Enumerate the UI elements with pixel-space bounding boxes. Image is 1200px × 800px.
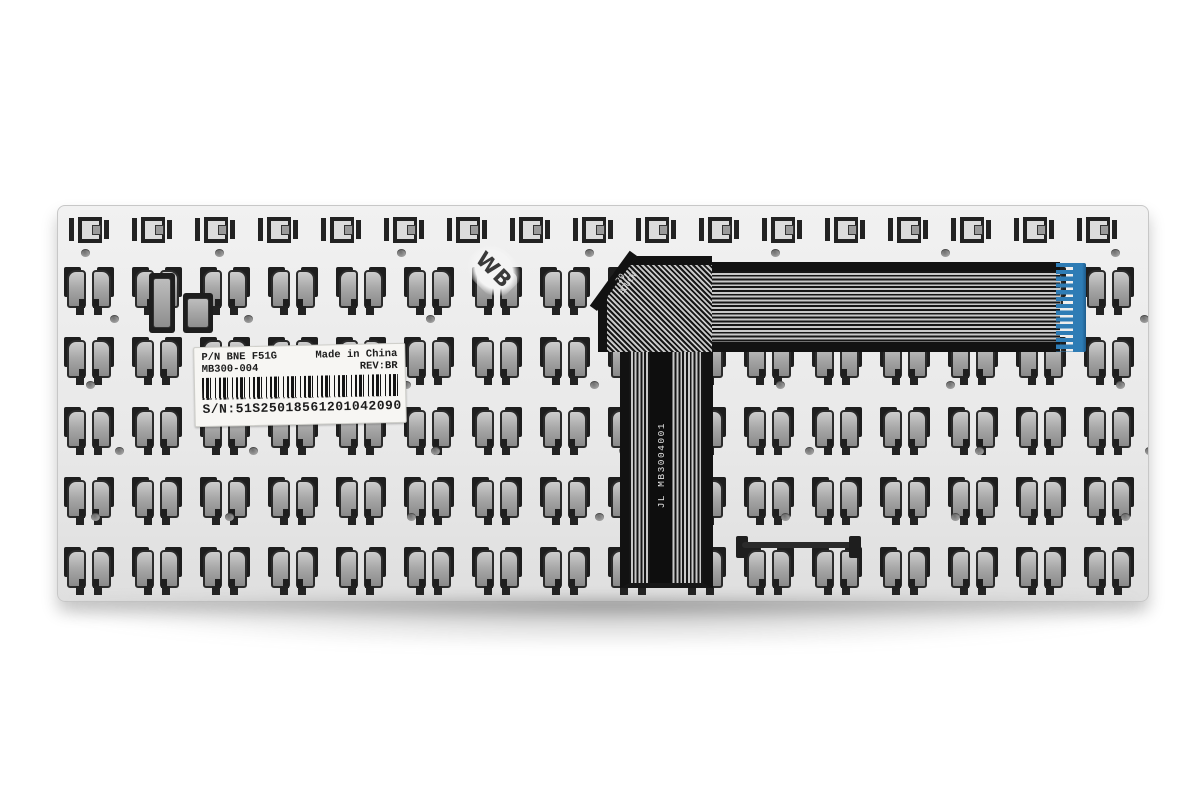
latch-pin-right xyxy=(162,376,170,385)
latch-tab xyxy=(167,220,172,239)
latch-tab xyxy=(356,220,361,239)
latch-hook-right xyxy=(160,550,179,588)
latch-pin-right xyxy=(910,586,918,595)
latch-hook-right xyxy=(1044,550,1063,588)
key-latch xyxy=(471,407,523,457)
latch-bar xyxy=(447,218,452,241)
latch-pin-left xyxy=(484,446,492,455)
latch-pin-left xyxy=(280,306,288,315)
latch-pin-right xyxy=(1046,586,1054,595)
latch-hook-left xyxy=(135,550,154,588)
screw-hole xyxy=(1121,513,1130,521)
latch-hook-right xyxy=(908,550,927,588)
latch-pin-left xyxy=(756,446,764,455)
latch-pin-right xyxy=(298,306,306,315)
key-latch xyxy=(1083,337,1135,387)
key-latch xyxy=(811,477,863,527)
latch-pin-left xyxy=(1096,376,1104,385)
latch-bar xyxy=(1077,218,1082,241)
latch-hook-right xyxy=(1112,550,1131,588)
latch-hook-left xyxy=(271,550,290,588)
latch-hook-right xyxy=(432,480,451,518)
latch-hook-right xyxy=(364,270,383,308)
screw-hole xyxy=(115,447,124,455)
latch-pin-right xyxy=(1114,306,1122,315)
latch-pin-right xyxy=(1046,446,1054,455)
latch-hook-left xyxy=(747,480,766,518)
function-key-latch xyxy=(636,217,678,243)
key-latch xyxy=(267,547,319,597)
latch-pin-right xyxy=(502,376,510,385)
latch-pin-left xyxy=(960,586,968,595)
latch-hook-right xyxy=(228,550,247,588)
latch-pin-left xyxy=(1028,586,1036,595)
latch-bracket xyxy=(834,217,858,243)
latch-pin-right xyxy=(978,586,986,595)
latch-pin-right xyxy=(162,516,170,525)
function-key-latch xyxy=(825,217,867,243)
latch-hook-left xyxy=(67,270,86,308)
latch-hook-left xyxy=(203,480,222,518)
latch-bar xyxy=(510,218,515,241)
latch-bracket xyxy=(204,217,228,243)
latch-pin-left xyxy=(348,586,356,595)
latch-hook-left xyxy=(815,410,834,448)
barcode xyxy=(202,374,398,400)
key-latch xyxy=(335,547,387,597)
latch-hook-left xyxy=(67,340,86,378)
latch-bracket xyxy=(645,217,669,243)
latch-pin-left xyxy=(144,516,152,525)
latch-pin-left xyxy=(824,376,832,385)
latch-pin-left xyxy=(552,376,560,385)
latch-pin-left xyxy=(960,516,968,525)
latch-pin-left xyxy=(1028,446,1036,455)
latch-pin-right xyxy=(298,446,306,455)
latch-pin-right xyxy=(230,446,238,455)
latch-hook-left xyxy=(543,550,562,588)
latch-pin-right xyxy=(774,586,782,595)
function-key-latch xyxy=(573,217,615,243)
screw-hole xyxy=(110,315,119,323)
latch-hook-left xyxy=(883,550,902,588)
latch-bracket xyxy=(708,217,732,243)
latch-hook-right xyxy=(568,340,587,378)
latch-pin-right xyxy=(910,446,918,455)
latch-bar xyxy=(258,218,263,241)
latch-tab xyxy=(797,220,802,239)
latch-pin-left xyxy=(76,516,84,525)
latch-pin-right xyxy=(94,586,102,595)
latch-pin-right xyxy=(366,516,374,525)
function-key-latch xyxy=(69,217,111,243)
latch-hook-right xyxy=(908,410,927,448)
latch-hook-right xyxy=(92,270,111,308)
latch-pin-left xyxy=(280,446,288,455)
latch-hook-right xyxy=(92,410,111,448)
latch-pin-right xyxy=(434,306,442,315)
latch-hook-left xyxy=(475,410,494,448)
latch-pin-left xyxy=(756,586,764,595)
latch-pin-left xyxy=(552,306,560,315)
screw-hole xyxy=(81,249,90,257)
latch-hook-right xyxy=(568,270,587,308)
latch-pin-left xyxy=(280,516,288,525)
latch-pin-right xyxy=(842,586,850,595)
latch-pin-right xyxy=(230,306,238,315)
latch-pin-left xyxy=(76,376,84,385)
key-latch xyxy=(131,337,183,387)
key-latch xyxy=(1015,407,1067,457)
key-latch xyxy=(947,547,999,597)
screw-hole xyxy=(1145,447,1149,455)
latch-hook-right xyxy=(500,480,519,518)
key-latch xyxy=(199,547,251,597)
latch-hook-right xyxy=(840,410,859,448)
latch-bar xyxy=(573,218,578,241)
key-latch xyxy=(471,547,523,597)
key-latch xyxy=(63,267,115,317)
latch-hook-right xyxy=(908,480,927,518)
latch-hook-left xyxy=(747,410,766,448)
latch-hook-left xyxy=(339,480,358,518)
latch-bracket xyxy=(897,217,921,243)
latch-pin-left xyxy=(1096,516,1104,525)
latch-pin-right xyxy=(1114,586,1122,595)
latch-tab xyxy=(293,220,298,239)
latch-pin-right xyxy=(1114,446,1122,455)
key-latch xyxy=(335,477,387,527)
key-latch xyxy=(267,267,319,317)
ribbon-vertical-run: JL MB3004001 xyxy=(620,348,713,588)
revision-label: REV:BR xyxy=(360,360,398,373)
latch-pin-right xyxy=(434,516,442,525)
latch-bar xyxy=(384,218,389,241)
latch-hook-right xyxy=(364,480,383,518)
latch-bracket xyxy=(330,217,354,243)
latch-pin-left xyxy=(212,516,220,525)
latch-bracket xyxy=(267,217,291,243)
latch-pin-left xyxy=(552,446,560,455)
latch-pin-left xyxy=(484,586,492,595)
key-latch xyxy=(879,477,931,527)
latch-bracket xyxy=(1086,217,1110,243)
latch-hook-left xyxy=(271,270,290,308)
latch-tab xyxy=(104,220,109,239)
latch-hook-left xyxy=(951,550,970,588)
latch-hook-left xyxy=(883,480,902,518)
key-latch xyxy=(63,547,115,597)
key-latch xyxy=(539,477,591,527)
latch-pin-right xyxy=(366,306,374,315)
latch-bar xyxy=(699,218,704,241)
key-latch xyxy=(1083,407,1135,457)
function-key-latch xyxy=(1077,217,1119,243)
latch-hook-right xyxy=(1044,410,1063,448)
latch-pin-left xyxy=(824,446,832,455)
latch-hook-right xyxy=(568,480,587,518)
latch-hook-right xyxy=(1112,340,1131,378)
latch-pin-left xyxy=(756,376,764,385)
part-number: P/N BNE F51G xyxy=(201,350,277,364)
latch-hook-right xyxy=(976,550,995,588)
ribbon-part-number: JL MB3004001 xyxy=(656,422,667,508)
key-latch xyxy=(131,407,183,457)
latch-hook-left xyxy=(1019,480,1038,518)
latch-hook-left xyxy=(407,340,426,378)
screw-hole xyxy=(86,381,95,389)
latch-hook-left xyxy=(67,480,86,518)
latch-bracket xyxy=(960,217,984,243)
latch-tab xyxy=(671,220,676,239)
key-latch xyxy=(267,477,319,527)
key-latch xyxy=(403,547,455,597)
latch-pin-right xyxy=(502,516,510,525)
latch-pin-right xyxy=(366,586,374,595)
latch-pin-right xyxy=(842,376,850,385)
latch-pin-right xyxy=(570,376,578,385)
latch-hook-right xyxy=(432,340,451,378)
latch-hook-left xyxy=(135,410,154,448)
latch-hook-left xyxy=(1019,550,1038,588)
latch-hook-right xyxy=(568,550,587,588)
latch-pin-right xyxy=(570,306,578,315)
key-latch xyxy=(335,267,387,317)
latch-pin-right xyxy=(570,446,578,455)
latch-pin-left xyxy=(76,586,84,595)
latch-bar xyxy=(636,218,641,241)
latch-hook-right xyxy=(160,340,179,378)
spacebar-stabilizer xyxy=(736,536,861,566)
latch-pin-left xyxy=(892,516,900,525)
screw-hole xyxy=(1140,315,1149,323)
latch-pin-left xyxy=(892,446,900,455)
screw-hole xyxy=(215,249,224,257)
latch-bar xyxy=(69,218,74,241)
latch-pin-right xyxy=(94,306,102,315)
latch-hook-right xyxy=(500,550,519,588)
screw-hole xyxy=(431,447,440,455)
latch-bracket xyxy=(393,217,417,243)
latch-tab xyxy=(230,220,235,239)
function-key-latch xyxy=(447,217,489,243)
latch-pin-left xyxy=(960,376,968,385)
screw-hole xyxy=(776,381,785,389)
latch-tab xyxy=(860,220,865,239)
latch-pin-left xyxy=(416,586,424,595)
latch-bar xyxy=(1014,218,1019,241)
latch-pin-left xyxy=(1096,306,1104,315)
latch-pin-right xyxy=(570,586,578,595)
latch-pin-left xyxy=(1028,516,1036,525)
latch-bar xyxy=(195,218,200,241)
latch-bracket xyxy=(582,217,606,243)
latch-tab xyxy=(545,220,550,239)
screw-hole xyxy=(426,315,435,323)
latch-pin-right xyxy=(298,516,306,525)
latch-hook-left xyxy=(407,270,426,308)
latch-pin-left xyxy=(348,306,356,315)
latch-pin-right xyxy=(434,586,442,595)
product-photo: P/N BNE F51G Made in China MB300-004 REV… xyxy=(0,0,1200,800)
latch-hook-left xyxy=(475,550,494,588)
screw-hole xyxy=(225,513,234,521)
latch-bar xyxy=(951,218,956,241)
latch-pin-right xyxy=(502,446,510,455)
model-number: MB300-004 xyxy=(202,363,259,376)
latch-pin-right xyxy=(910,516,918,525)
latch-pin-left xyxy=(144,376,152,385)
latch-pin-right xyxy=(162,446,170,455)
latch-hook-left xyxy=(951,410,970,448)
latch-pin-right xyxy=(298,586,306,595)
latch-hook-right xyxy=(1044,480,1063,518)
latch-pin-left xyxy=(280,586,288,595)
latch-hook-left xyxy=(815,480,834,518)
latch-hook-right xyxy=(500,340,519,378)
latch-hook-right xyxy=(976,480,995,518)
latch-pin-left xyxy=(484,516,492,525)
latch-pin-left xyxy=(144,446,152,455)
key-latch xyxy=(743,407,795,457)
latch-hook-left xyxy=(543,340,562,378)
latch-hook-left xyxy=(339,270,358,308)
screw-hole xyxy=(590,381,599,389)
function-key-latch xyxy=(510,217,552,243)
latch-pin-left xyxy=(484,306,492,315)
latch-hook-right xyxy=(840,480,859,518)
key-latch xyxy=(539,407,591,457)
latch-hook-right xyxy=(432,410,451,448)
screw-hole xyxy=(975,447,984,455)
latch-pin-left xyxy=(76,446,84,455)
latch-pin-left xyxy=(552,586,560,595)
latch-pin-right xyxy=(162,586,170,595)
latch-bar xyxy=(321,218,326,241)
latch-pin-right xyxy=(230,586,238,595)
function-key-latch xyxy=(384,217,426,243)
key-latch xyxy=(63,337,115,387)
latch-hook-right xyxy=(296,550,315,588)
latch-pin-right xyxy=(366,446,374,455)
latch-pin-left xyxy=(348,446,356,455)
key-latch xyxy=(131,477,183,527)
screw-hole xyxy=(397,249,406,257)
latch-hook-right xyxy=(1112,410,1131,448)
plate-shadow xyxy=(75,599,1135,645)
latch-tab xyxy=(1112,220,1117,239)
latch-tab xyxy=(1049,220,1054,239)
screw-hole xyxy=(249,447,258,455)
function-key-latch xyxy=(195,217,237,243)
latch-bracket xyxy=(771,217,795,243)
latch-hook-left xyxy=(271,480,290,518)
latch-pin-right xyxy=(1046,376,1054,385)
screw-hole xyxy=(595,513,604,521)
latch-pin-left xyxy=(824,516,832,525)
key-latch xyxy=(403,407,455,457)
latch-hook-left xyxy=(339,550,358,588)
latch-hook-left xyxy=(475,480,494,518)
latch-hook-left xyxy=(135,480,154,518)
latch-hook-left xyxy=(1087,340,1106,378)
function-key-latch xyxy=(951,217,993,243)
latch-pin-right xyxy=(434,376,442,385)
key-latch xyxy=(131,547,183,597)
key-latch xyxy=(539,547,591,597)
latch-bar xyxy=(888,218,893,241)
latch-hook-right xyxy=(296,270,315,308)
latch-pin-left xyxy=(212,446,220,455)
key-latch xyxy=(539,337,591,387)
key-latch xyxy=(1015,477,1067,527)
screw-hole xyxy=(407,513,416,521)
screw-hole xyxy=(1116,381,1125,389)
latch-hook-right xyxy=(160,480,179,518)
latch-tab xyxy=(923,220,928,239)
latch-pin-left xyxy=(416,446,424,455)
function-key-latch xyxy=(1014,217,1056,243)
latch-pin-right xyxy=(774,446,782,455)
key-latch xyxy=(879,407,931,457)
screw-hole xyxy=(91,513,100,521)
key-latch xyxy=(403,267,455,317)
latch-pin-right xyxy=(570,516,578,525)
wide-key-cutout xyxy=(183,293,213,333)
latch-bracket xyxy=(1023,217,1047,243)
latch-pin-right xyxy=(502,586,510,595)
latch-pin-left xyxy=(484,376,492,385)
latch-hook-left xyxy=(1087,410,1106,448)
latch-pin-right xyxy=(94,446,102,455)
latch-hook-right xyxy=(92,340,111,378)
latch-hook-right xyxy=(228,270,247,308)
wide-key-clip xyxy=(187,298,209,328)
part-label-sticker: P/N BNE F51G Made in China MB300-004 REV… xyxy=(193,343,407,427)
latch-hook-left xyxy=(407,410,426,448)
latch-hook-right xyxy=(1112,270,1131,308)
latch-pin-left xyxy=(212,306,220,315)
latch-hook-left xyxy=(203,550,222,588)
function-key-latch xyxy=(132,217,174,243)
latch-pin-left xyxy=(756,516,764,525)
latch-hook-right xyxy=(772,480,791,518)
latch-tab xyxy=(734,220,739,239)
stabilizer-foot-right xyxy=(849,536,861,558)
latch-hook-left xyxy=(543,410,562,448)
stabilizer-rail xyxy=(742,542,855,548)
latch-bracket xyxy=(456,217,480,243)
ffc-connector xyxy=(1056,263,1086,352)
latch-hook-right xyxy=(976,410,995,448)
latch-hook-right xyxy=(160,410,179,448)
latch-pin-right xyxy=(1046,516,1054,525)
latch-tab xyxy=(986,220,991,239)
function-key-latch xyxy=(888,217,930,243)
key-latch xyxy=(1083,267,1135,317)
screw-hole xyxy=(946,381,955,389)
screw-hole xyxy=(585,249,594,257)
key-latch xyxy=(947,407,999,457)
key-latch xyxy=(471,337,523,387)
latch-hook-left xyxy=(1019,410,1038,448)
latch-hook-left xyxy=(67,550,86,588)
latch-hook-left xyxy=(407,550,426,588)
key-latch xyxy=(63,477,115,527)
screw-hole xyxy=(771,249,780,257)
screw-hole xyxy=(244,315,253,323)
key-latch xyxy=(1015,547,1067,597)
